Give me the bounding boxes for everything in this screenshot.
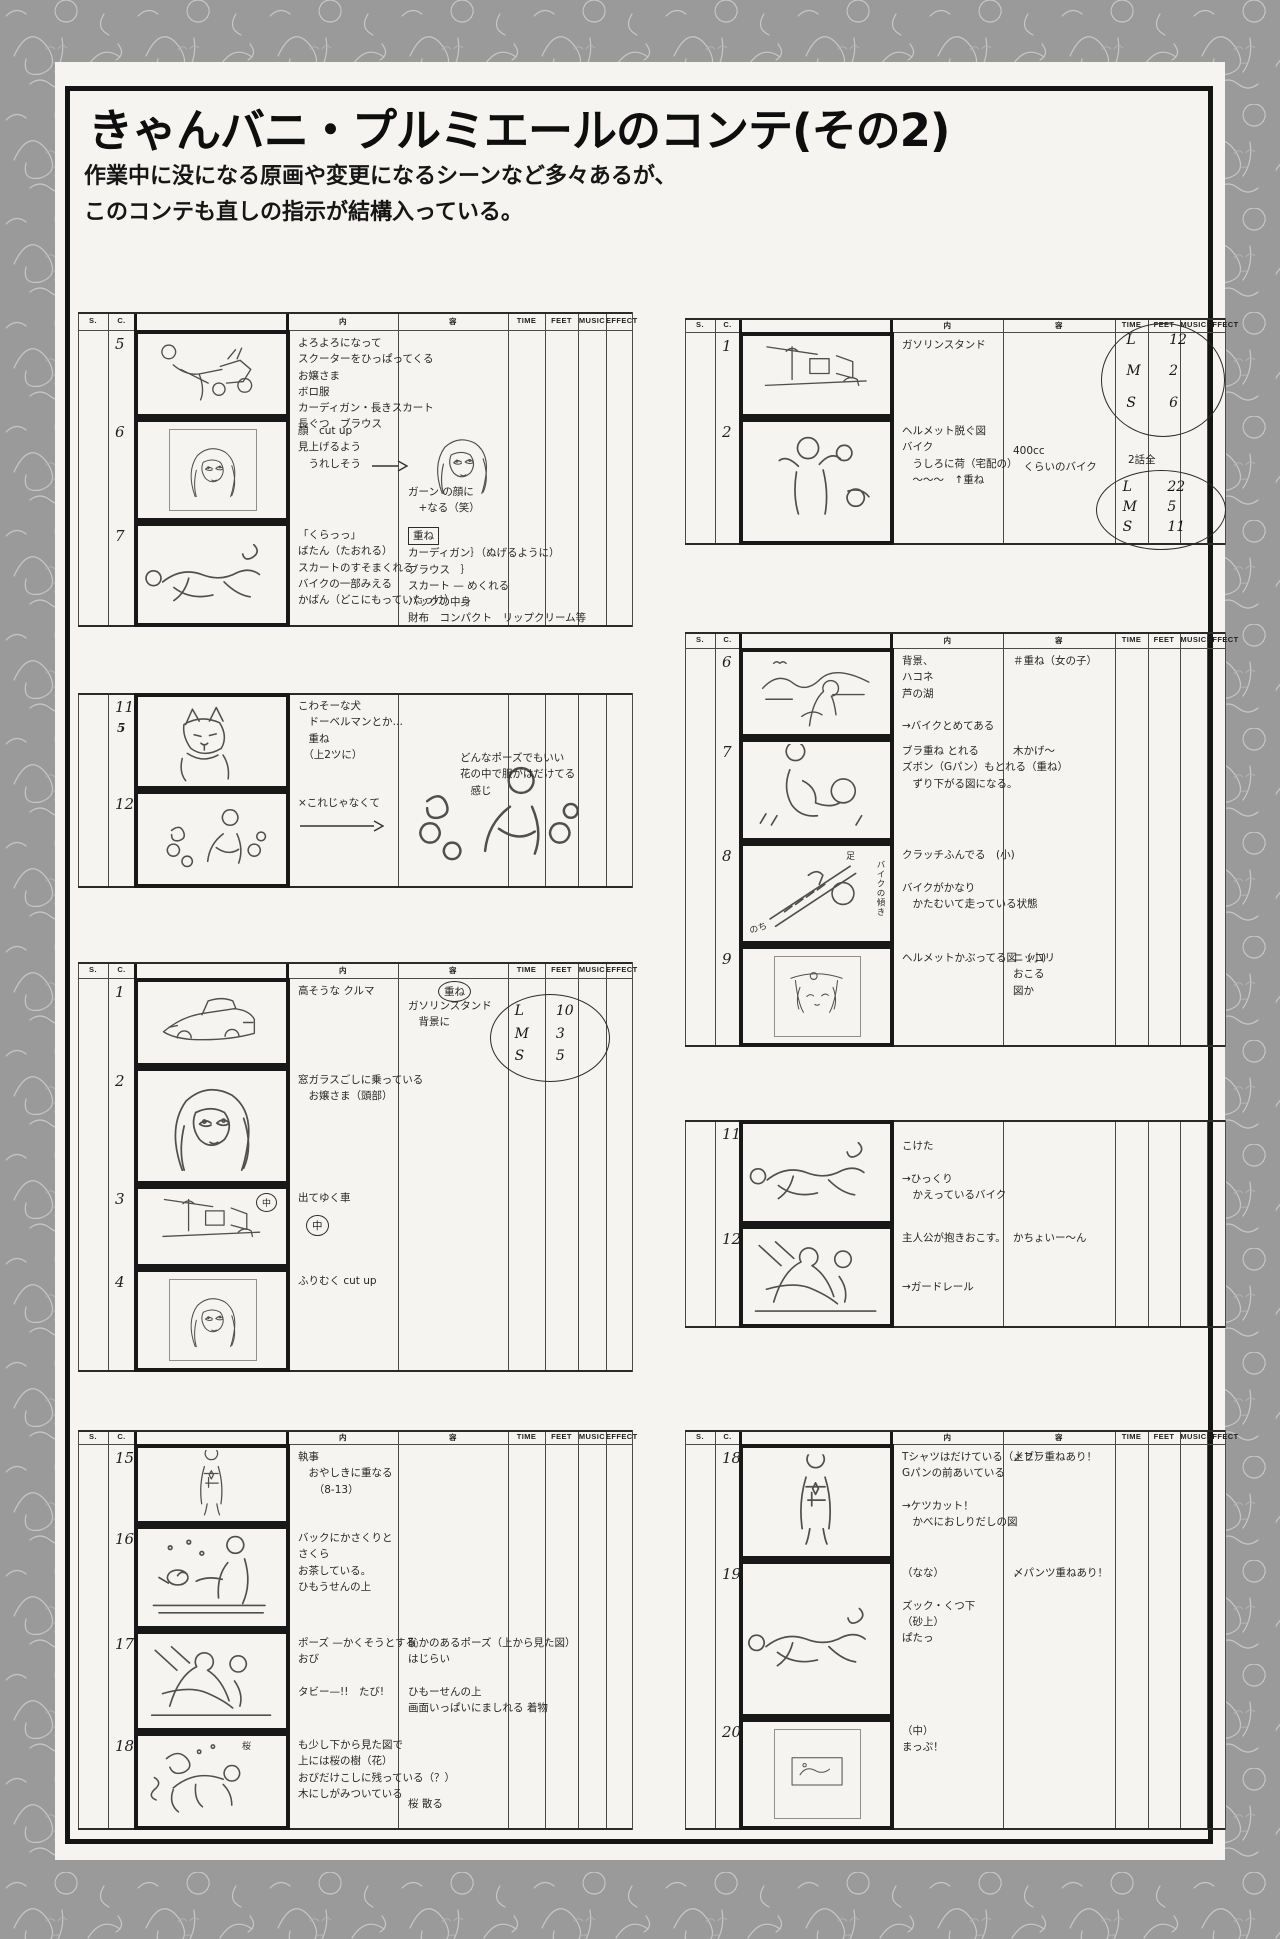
- cut-number: 5: [115, 335, 125, 353]
- sketch-girl-collapsed-on-sand: [745, 1566, 888, 1712]
- note-line: よろよろになって: [298, 335, 463, 351]
- grid-line: [632, 693, 633, 888]
- cut-notes-content: 執事 おやしきに重なる （8-13）: [298, 1449, 463, 1498]
- grid-line: [508, 1430, 509, 1830]
- note-line: 上には桜の樹（花）: [298, 1753, 463, 1769]
- grid-line: [78, 962, 79, 1372]
- column-header-feet: FEET: [545, 1432, 578, 1441]
- page-subtitle-line2: このコンテも直しの指示が結構入っている。: [84, 194, 523, 226]
- panel-sketch-area: [140, 699, 284, 784]
- note-line: ふりむく cut up: [298, 1273, 463, 1289]
- note-line: [902, 1154, 1068, 1170]
- storyboard-panel: [134, 1268, 290, 1372]
- sketch-girl-clinging-to-tree: [140, 1738, 284, 1824]
- panel-sketch-area: [140, 1450, 284, 1519]
- storyboard-sheet-cuts-11-12-crash: 11こけた →ひっくり かえっているバイク12主人公が抱きおこす。 →ガードレー…: [685, 1120, 1225, 1328]
- grid-line: [685, 632, 686, 1047]
- note-line: →ひっくり: [902, 1171, 1068, 1187]
- panel-sketch-area: [140, 336, 284, 412]
- column-header-time: TIME: [508, 316, 545, 325]
- note-line: 出てゆく車: [298, 1190, 463, 1206]
- note-line: スカート — めくれる: [408, 578, 588, 594]
- note-line: ドーベルマンとか…: [298, 714, 463, 730]
- note-line: こわそーな犬: [298, 698, 463, 714]
- note-line: ＃重ね（女の子）: [1013, 653, 1195, 669]
- column-header-music: MUSIC: [578, 965, 606, 974]
- column-header-dialogue: 容: [1003, 635, 1115, 646]
- storyboard-panel: [739, 418, 894, 545]
- grid-line: [685, 318, 686, 545]
- note-line: 木かげ〜: [1013, 743, 1195, 759]
- lms-letter: M: [1123, 499, 1137, 515]
- panel-sketch-area: [140, 1636, 284, 1726]
- grid-line: [606, 312, 607, 627]
- note-line: さくら: [298, 1546, 463, 1562]
- cut-number: 8: [722, 847, 732, 865]
- panel-inner-frame: [774, 1729, 861, 1818]
- column-header-c: C.: [715, 320, 740, 329]
- grid-line: [78, 693, 79, 888]
- cut-notes-dialogue: ニッコリおこる図か: [1013, 950, 1195, 999]
- note-line: クラッチふんでる (小): [902, 847, 1068, 863]
- cut-number: 6: [115, 423, 125, 441]
- cut-number-sub: 5: [117, 721, 125, 735]
- lms-letter: L: [1126, 332, 1135, 348]
- storyboard-panel: [739, 648, 894, 738]
- note-line: おこる: [1013, 966, 1195, 982]
- note-line: →ケツカット！: [902, 1498, 1068, 1514]
- column-header-feet: FEET: [545, 965, 578, 974]
- lms-feet-value: 10: [556, 1003, 574, 1019]
- cut-notes-content: （中）まっぷ！: [902, 1723, 1068, 1756]
- note-line: [902, 702, 1068, 718]
- column-header-content: 内: [892, 320, 1003, 331]
- lms-feet-value: 22: [1167, 479, 1185, 495]
- grid-line: [1115, 1430, 1116, 1830]
- arrow-icon: [372, 459, 408, 473]
- revision-note: どんなポーズでもいい花の中で服がはだけてる 感じ: [460, 750, 575, 799]
- lms-feet-value: 2: [1169, 363, 1178, 379]
- cut-notes-dialogue: 〆パンツ重ねあり！: [1013, 1565, 1195, 1581]
- grid-line: [108, 693, 109, 888]
- note-line: 重ね: [298, 731, 463, 747]
- column-header-c: C.: [108, 1432, 135, 1441]
- note-line: ズック・くつ下: [902, 1598, 1068, 1614]
- cut-notes-dialogue: 恥かのあるポーズ（上から見た図）はじらい ひもーせんの上画面いっぱいにましれる …: [408, 1635, 588, 1716]
- grid-line: [685, 1120, 686, 1328]
- column-header-dialogue: 容: [398, 316, 508, 327]
- column-header-s: S.: [78, 965, 108, 974]
- cut-number: 3: [115, 1190, 125, 1208]
- lms-feet-value: 11: [1167, 519, 1185, 535]
- cut-notes-dialogue: 桜 散る: [408, 1796, 588, 1812]
- cut-number: 11: [722, 1125, 741, 1143]
- column-header-effect: EFFECT: [606, 965, 632, 974]
- column-header-content: 内: [288, 965, 398, 976]
- sketch-expensive-car: [140, 984, 284, 1061]
- grid-line: [1180, 1430, 1181, 1830]
- panel-sketch-area: [140, 1738, 284, 1824]
- grid-line: [78, 312, 79, 627]
- grid-line: [1148, 1430, 1149, 1830]
- panel-annotation: 足: [846, 849, 855, 862]
- storyboard-panel: [134, 790, 290, 888]
- cut-number: 19: [722, 1565, 741, 1583]
- grid-line: [685, 1430, 686, 1830]
- grid-line: [1207, 1120, 1208, 1328]
- sketch-tea-on-red-carpet: [140, 1531, 284, 1624]
- note-line: ずり下がる図になる。: [902, 776, 1068, 792]
- storyboard-sheet-cuts-15-18-sakura: S.C.内容TIMEFEETMUSICEFFECT15執事 おやしきに重なる （…: [78, 1430, 632, 1830]
- grid-line: [1115, 1120, 1116, 1328]
- note-line: [902, 1581, 1068, 1597]
- grid-line: [715, 1120, 716, 1328]
- grid-line: [578, 1430, 579, 1830]
- cut-number: 4: [115, 1273, 125, 1291]
- panel-sketch-area: [745, 338, 888, 412]
- column-header-effect: EFFECT: [1207, 320, 1225, 329]
- storyboard-panel: [739, 738, 894, 842]
- column-header-c: C.: [715, 1432, 740, 1441]
- panel-sketch-area: [140, 1531, 284, 1624]
- cut-notes-content: 窓ガラスごしに乗っている お嬢さま（頭部）: [298, 1072, 463, 1105]
- storyboard-panel: [739, 332, 894, 418]
- column-header-music: MUSIC: [1180, 1432, 1207, 1441]
- note-line: お嬢さま: [298, 368, 463, 384]
- panel-sketch-area: [745, 654, 888, 732]
- note-line: ハコネ: [902, 669, 1068, 685]
- lms-count-circle-episode: L22M5S11: [1096, 470, 1226, 550]
- note-line: ニッコリ: [1013, 950, 1195, 966]
- column-header-dialogue: 容: [398, 1432, 508, 1443]
- sketch-girl-shirt-open-standing: [745, 1450, 888, 1554]
- note-line: こけた: [902, 1138, 1068, 1154]
- sketch-hakone-lake-girl: [745, 654, 888, 732]
- storyboard-sheet-cuts-5-7-scooter: S.C.内容TIMEFEETMUSICEFFECT5よろよろになってスクーターを…: [78, 312, 632, 627]
- note-line: バックにかさくりと: [298, 1530, 463, 1546]
- column-header-feet: FEET: [1148, 635, 1180, 644]
- circled-size-mark: 中: [306, 1215, 329, 1236]
- note-line: かたむいて走っている状態: [902, 896, 1068, 912]
- panel-annotation: 桜: [242, 1739, 251, 1752]
- note-line: かちょいー〜ん: [1013, 1230, 1195, 1246]
- grid-line: [1207, 1430, 1208, 1830]
- panel-sketch-area: [745, 1566, 888, 1712]
- cut-number: 7: [115, 527, 125, 545]
- note-line: ボロ服: [298, 384, 463, 400]
- cut-number: 18: [722, 1449, 741, 1467]
- cut-notes-dialogue: かちょいー〜ん: [1013, 1230, 1195, 1246]
- page-title: きゃんバニ・プルミエールのコンテ(その2): [88, 94, 949, 159]
- grid-line: [715, 632, 716, 1047]
- cut-number: 7: [722, 743, 732, 761]
- note-line: →バイクとめてある: [902, 718, 1068, 734]
- note-line: も少し下から見た図で: [298, 1737, 463, 1753]
- sketch-girl-fallen: [140, 528, 284, 621]
- storyboard-panel: [134, 522, 290, 627]
- column-header-effect: EFFECT: [1207, 635, 1225, 644]
- storyboard-sheet-cuts-6-9-hakone: S.C.内容TIMEFEETMUSICEFFECT6背景、ハコネ芦の湖 →バイク…: [685, 632, 1225, 1047]
- grid-line: [108, 1430, 109, 1830]
- storyboard-panel: [739, 945, 894, 1047]
- column-header-dialogue: 容: [1003, 1432, 1115, 1443]
- note-line: バックの中身: [408, 594, 588, 610]
- note-line: おびだけこしに残っている（？）: [298, 1770, 463, 1786]
- grid-line: [545, 1430, 546, 1830]
- note-line: （中）: [902, 1723, 1068, 1739]
- cut-number: 2: [722, 423, 732, 441]
- note-line: （8-13）: [298, 1482, 463, 1498]
- column-header-content: 内: [288, 1432, 398, 1443]
- column-header-c: C.: [108, 316, 135, 325]
- sketch-girl-in-roses: [140, 796, 284, 882]
- scanned-storyboard-page: { "page": { "title": "きゃんバニ・プルミエールのコンテ(そ…: [0, 0, 1280, 1939]
- panel-sketch-area: [140, 984, 284, 1061]
- lms-feet-value: 3: [556, 1026, 565, 1042]
- note-line: ヘルメット脱ぐ図: [902, 423, 1068, 439]
- sketch-doberman-dog: [140, 699, 284, 784]
- column-header-dialogue: 容: [1003, 320, 1115, 331]
- note-line: スクーターをひっぱってくる: [298, 351, 463, 367]
- column-header-time: TIME: [1115, 635, 1148, 644]
- circled-size-mark-in-panel: 中: [256, 1193, 277, 1212]
- note-line: かえっているバイク: [902, 1187, 1068, 1203]
- panel-sketch-area: [745, 424, 888, 539]
- column-header-dialogue: 容: [398, 965, 508, 976]
- lms-letter: M: [515, 1026, 529, 1042]
- cut-notes-content: クラッチふんでる (小) バイクがかなり かたむいて走っている状態: [902, 847, 1068, 912]
- lms-count-circle: L10M3S5: [490, 994, 610, 1082]
- note-line: 画面いっぱいにましれる 着物: [408, 1700, 588, 1716]
- sketch-girl-fallen-with-bike: [745, 1126, 888, 1219]
- note-line: [902, 863, 1068, 879]
- note-line: どんなポーズでもいい: [460, 750, 575, 766]
- note-line: 〆ブラ重ねあり！: [1013, 1449, 1195, 1465]
- column-header-music: MUSIC: [578, 1432, 606, 1441]
- cut-notes-dialogue: 重ねカーディガン｝（ぬげるように）ブラウス ｝スカート — めくれるバックの中身…: [408, 527, 588, 627]
- lms-letter: L: [1123, 479, 1132, 495]
- column-header-effect: EFFECT: [1207, 1432, 1225, 1441]
- lms-feet-value: 12: [1169, 332, 1187, 348]
- column-header-effect: EFFECT: [606, 316, 632, 325]
- overlay-label: 重ね: [438, 981, 471, 1002]
- note-line: お嬢さま（頭部）: [298, 1088, 463, 1104]
- column-header-music: MUSIC: [578, 316, 606, 325]
- cut-number: 6: [722, 653, 732, 671]
- note-line: バイクがかなり: [902, 880, 1068, 896]
- storyboard-panel: [134, 418, 290, 522]
- cut-notes-content: ふりむく cut up: [298, 1273, 463, 1289]
- storyboard-panel: [134, 978, 290, 1067]
- cut-number: 17: [115, 1635, 134, 1653]
- grid-line: [1180, 1120, 1181, 1328]
- sketch-hero-lifting-girl: [745, 1231, 888, 1322]
- grid-line: [108, 312, 109, 627]
- column-header-c: C.: [108, 965, 135, 974]
- cut-notes-content: バックにかさくりとさくらお茶している。ひもうせんの上: [298, 1530, 463, 1595]
- note-line: 桜 散る: [408, 1796, 588, 1812]
- cut-notes-content: も少し下から見た図で上には桜の樹（花）おびだけこしに残っている（？）木にしがみつ…: [298, 1737, 463, 1802]
- column-header-content: 内: [892, 1432, 1003, 1443]
- cut-notes-content: 出てゆく車: [298, 1190, 463, 1206]
- grid-line: [1225, 632, 1226, 1047]
- note-line: 重ね: [408, 527, 588, 545]
- cut-number: 15: [115, 1449, 134, 1467]
- revision-face-sketch: [414, 410, 510, 518]
- boxed-label: 重ね: [408, 527, 439, 545]
- lms-letter: M: [1126, 363, 1140, 379]
- storyboard-panel: [739, 1718, 894, 1830]
- column-header-feet: FEET: [545, 316, 578, 325]
- storyboard-panel: [134, 693, 290, 790]
- lms-letter: L: [515, 1003, 524, 1019]
- arrow-icon: [300, 819, 384, 833]
- note-line: [902, 1263, 1068, 1279]
- note-line: ひもうせんの上: [298, 1579, 463, 1595]
- cut-number: 1: [115, 983, 125, 1001]
- revision-arrow: [372, 458, 408, 477]
- grid-line: [78, 312, 632, 314]
- note-line: ぱたっ: [902, 1630, 1068, 1646]
- sketch-girls-lying-on-carpet: [140, 1636, 284, 1726]
- panel-inner-frame: [774, 956, 861, 1037]
- grid-line: [715, 1430, 716, 1830]
- note-line: [902, 1482, 1068, 1498]
- grid-line: [715, 318, 716, 545]
- sketch-girl-in-car-window: [140, 1073, 284, 1179]
- lms-letter: S: [515, 1048, 525, 1064]
- sketch-girl-face-closeup: [170, 430, 256, 511]
- revision-arrow: [300, 818, 384, 837]
- grid-line: [1207, 632, 1208, 1047]
- sketch-girl-face-closeup: [414, 410, 510, 518]
- note-line: お茶している。: [298, 1563, 463, 1579]
- note-line: （砂上）: [902, 1614, 1068, 1630]
- note-line: 図か: [1013, 983, 1195, 999]
- cut-notes-dialogue: 〆ブラ重ねあり！: [1013, 1449, 1195, 1465]
- storyboard-panel: [134, 1067, 290, 1185]
- panel-sketch-area: [745, 1450, 888, 1554]
- column-header-time: TIME: [508, 965, 545, 974]
- sketch-girl-riding-away: [745, 744, 888, 836]
- sketch-girl-looking-back: [170, 1280, 256, 1361]
- cut-notes-content: ガソリンスタンド: [902, 337, 1068, 353]
- lms-feet-value: 5: [1167, 499, 1176, 515]
- storyboard-panel: [134, 330, 290, 418]
- sketch-rider-removing-helmet: [745, 424, 888, 539]
- grid-line: [78, 1430, 79, 1830]
- panel-inner-frame: [169, 1279, 257, 1362]
- storyboard-panel: [134, 1525, 290, 1630]
- column-header-s: S.: [685, 320, 715, 329]
- note-line: 芦の湖: [902, 686, 1068, 702]
- note-line: [408, 1668, 588, 1684]
- storyboard-panel: [134, 1732, 290, 1830]
- grid-line: [1225, 1430, 1226, 1830]
- storyboard-sheet-cuts-18-20: S.C.内容TIMEFEETMUSICEFFECT18Tシャツはだけている（上ヒ…: [685, 1430, 1225, 1830]
- lms-count-circle: L12M2S6: [1101, 323, 1225, 437]
- note-line: ブラウス ｝: [408, 562, 588, 578]
- grid-line: [632, 312, 633, 627]
- panel-sketch-area: [140, 528, 284, 621]
- note-line: 執事: [298, 1449, 463, 1465]
- sketch-face-in-helmet: [775, 957, 860, 1036]
- note-line: はじらい: [408, 1651, 588, 1667]
- cut-notes-dialogue: 木かげ〜: [1013, 743, 1195, 759]
- storyboard-panel: [739, 1560, 894, 1718]
- note-line: ガソリンスタンド: [902, 337, 1068, 353]
- panel-inner-frame: [169, 429, 257, 512]
- note-line: 花の中で服がはだけてる: [460, 766, 575, 782]
- panel-sketch-area: [140, 1073, 284, 1179]
- storyboard-panel: [739, 1120, 894, 1225]
- column-header-effect: EFFECT: [606, 1432, 632, 1441]
- sketch-girl-pulling-scooter: [140, 336, 284, 412]
- grid-line: [685, 632, 1225, 634]
- note-line: 感じ: [460, 783, 575, 799]
- grid-line: [632, 1430, 633, 1830]
- panel-sketch-area: [745, 744, 888, 836]
- cut-number: 11: [115, 698, 134, 716]
- grid-line: [606, 1430, 607, 1830]
- storyboard-panel: [739, 1225, 894, 1328]
- note-line: ズボン（Gパン）もとれる（重ね）: [902, 759, 1068, 775]
- panel-sketch-area: [140, 796, 284, 882]
- note-line: Gパンの前あいている: [902, 1465, 1068, 1481]
- grid-line: [1148, 1120, 1149, 1328]
- cut-number: 20: [722, 1723, 741, 1741]
- column-header-music: MUSIC: [1180, 635, 1207, 644]
- cut-notes-dialogue: ＃重ね（女の子）: [1013, 653, 1195, 669]
- cut-number: 18: [115, 1737, 134, 1755]
- panel-sketch-area: [745, 1231, 888, 1322]
- note-line: [902, 1246, 1068, 1262]
- note-line: 窓ガラスごしに乗っている: [298, 1072, 463, 1088]
- note-line: ひもーせんの上: [408, 1684, 588, 1700]
- cut-number: 16: [115, 1530, 134, 1548]
- column-header-s: S.: [78, 1432, 108, 1441]
- lms-letter: S: [1123, 519, 1133, 535]
- sketch-butler-standing: [140, 1450, 284, 1519]
- column-header-s: S.: [78, 316, 108, 325]
- column-header-s: S.: [685, 1432, 715, 1441]
- note-line: カーディガン｝（ぬげるように）: [408, 545, 588, 561]
- note-line: おやしきに重なる: [298, 1465, 463, 1481]
- page-subtitle-line1: 作業中に没になる原画や変更になるシーンなど多々あるが、: [84, 158, 676, 190]
- note-line: 恥かのあるポーズ（上から見た図）: [408, 1635, 588, 1651]
- sketch-map-sketch: [775, 1730, 860, 1817]
- lms-letter: S: [1126, 395, 1136, 411]
- lms-feet-value: 6: [1169, 395, 1178, 411]
- grid-line: [398, 962, 399, 1372]
- grid-line: [78, 962, 632, 964]
- note-line: かべにおしりだしの図: [902, 1514, 1068, 1530]
- note-line: まっぷ！: [902, 1739, 1068, 1755]
- note-line: 財布 コンパクト リップクリーム等: [408, 610, 588, 626]
- episode-total-label: 2話全: [1128, 452, 1156, 468]
- cut-notes-content: こけた →ひっくり かえっているバイク: [902, 1138, 1068, 1203]
- storyboard-panel: [739, 1444, 894, 1560]
- note-line: →ガードレール: [902, 1279, 1068, 1295]
- column-header-content: 内: [288, 316, 398, 327]
- cut-number: 12: [115, 795, 134, 813]
- sketch-gas-station-street: [745, 338, 888, 412]
- column-header-time: TIME: [1115, 1432, 1148, 1441]
- lms-feet-value: 5: [556, 1048, 565, 1064]
- cut-number: 2: [115, 1072, 125, 1090]
- note-line: 400cc: [1013, 443, 1195, 459]
- storyboard-panel: [134, 1444, 290, 1525]
